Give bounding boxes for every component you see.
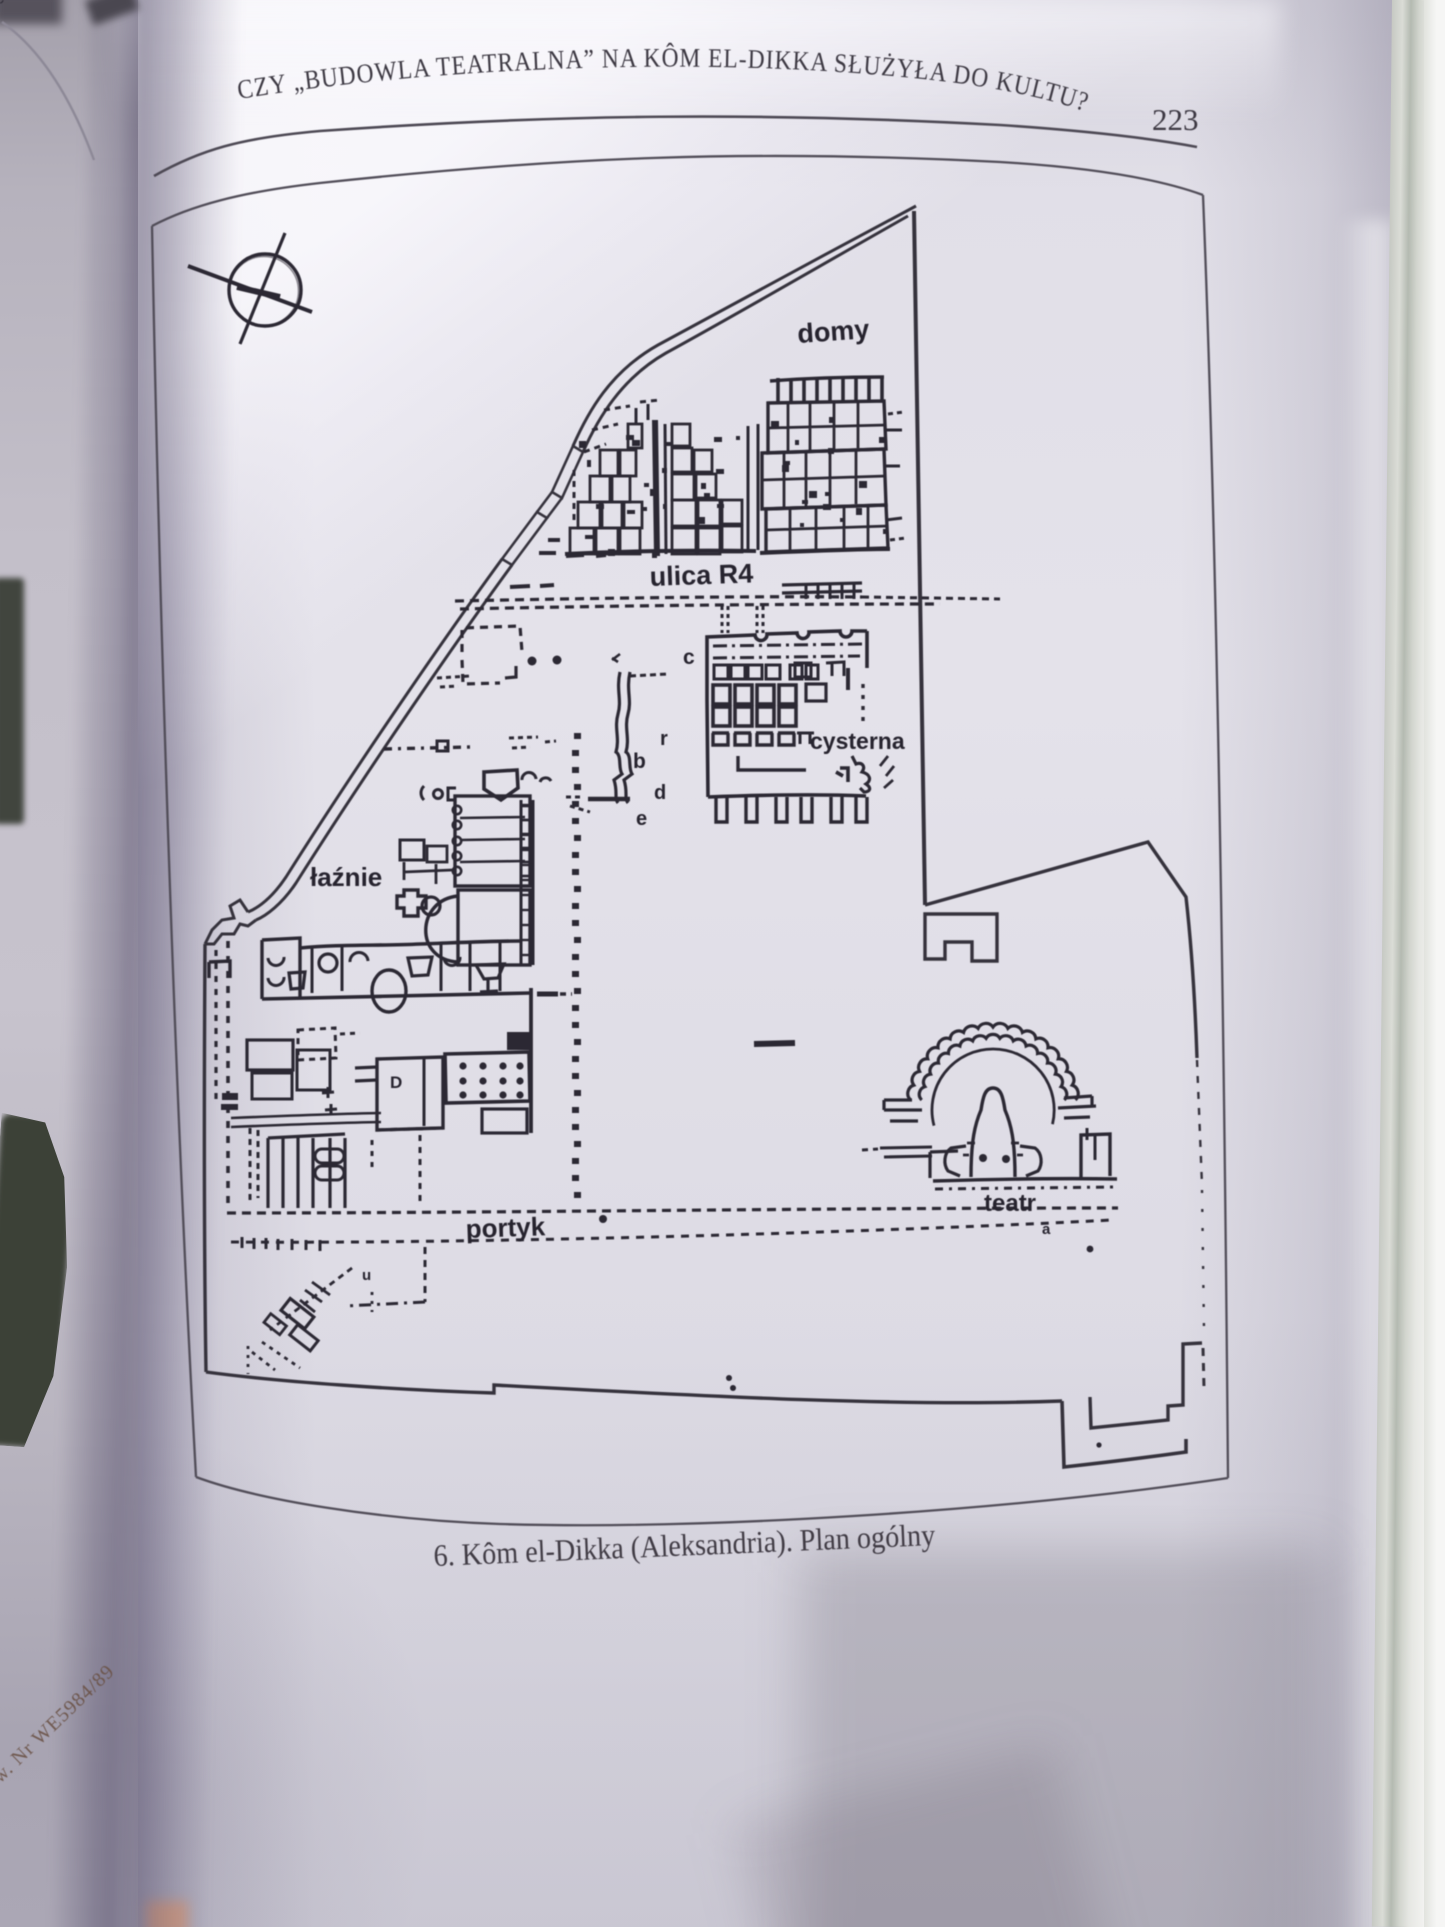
svg-text:u: u [362, 1267, 371, 1284]
svg-text:223: 223 [1152, 102, 1199, 137]
svg-text:domy: domy [796, 314, 870, 349]
svg-text:a: a [1042, 1221, 1051, 1238]
svg-text:w. Nr WE5984/89: w. Nr WE5984/89 [0, 1660, 119, 1787]
svg-text:d: d [654, 782, 666, 804]
svg-text:D: D [390, 1073, 402, 1092]
svg-text:ulica R4: ulica R4 [649, 558, 754, 592]
svg-text:e: e [636, 808, 647, 830]
svg-text:r: r [660, 728, 668, 750]
svg-text:portyk: portyk [465, 1211, 546, 1244]
svg-text:b: b [633, 750, 646, 773]
svg-text:łaźnie: łaźnie [310, 862, 382, 892]
svg-text:c: c [683, 646, 695, 669]
svg-text:teatr: teatr [984, 1190, 1036, 1217]
svg-text:cysterna: cysterna [810, 728, 905, 754]
svg-text:CZY „BUDOWLA TEATRALNA” NA KÔM: CZY „BUDOWLA TEATRALNA” NA KÔM EL-DIKKA … [235, 43, 1093, 117]
